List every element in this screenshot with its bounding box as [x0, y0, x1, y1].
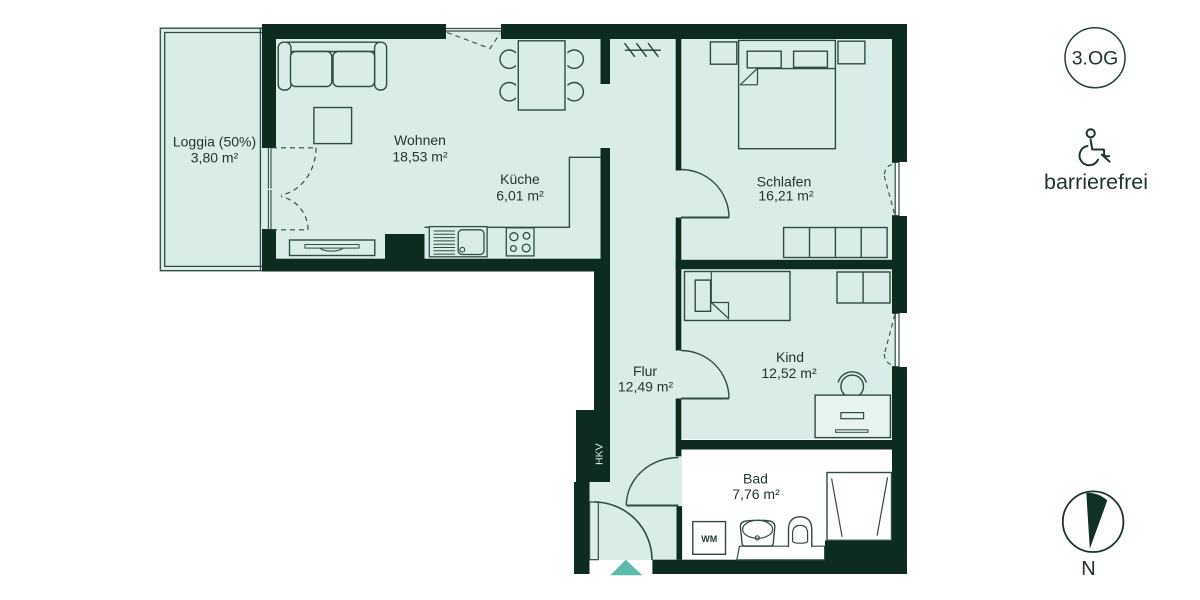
svg-text:Kind: Kind: [776, 349, 804, 365]
svg-text:12,52 m²: 12,52 m²: [761, 365, 817, 381]
svg-text:16,21 m²: 16,21 m²: [758, 188, 814, 204]
svg-text:3.OG: 3.OG: [1072, 48, 1119, 70]
svg-text:Loggia (50%): Loggia (50%): [173, 134, 256, 150]
svg-text:Küche: Küche: [500, 171, 540, 187]
svg-text:12,49 m²: 12,49 m²: [618, 379, 674, 395]
svg-text:6,01 m²: 6,01 m²: [496, 188, 544, 204]
svg-text:barrierefrei: barrierefrei: [1044, 170, 1148, 194]
svg-text:7,76 m²: 7,76 m²: [732, 486, 780, 502]
svg-text:Bad: Bad: [743, 471, 768, 487]
svg-text:WM: WM: [701, 534, 717, 544]
svg-text:Flur: Flur: [633, 363, 657, 379]
svg-text:N: N: [1081, 558, 1095, 580]
svg-text:18,53 m²: 18,53 m²: [392, 149, 448, 165]
svg-text:3,80 m²: 3,80 m²: [191, 150, 239, 166]
svg-text:Wohnen: Wohnen: [394, 132, 446, 148]
svg-text:HKV: HKV: [594, 443, 606, 465]
